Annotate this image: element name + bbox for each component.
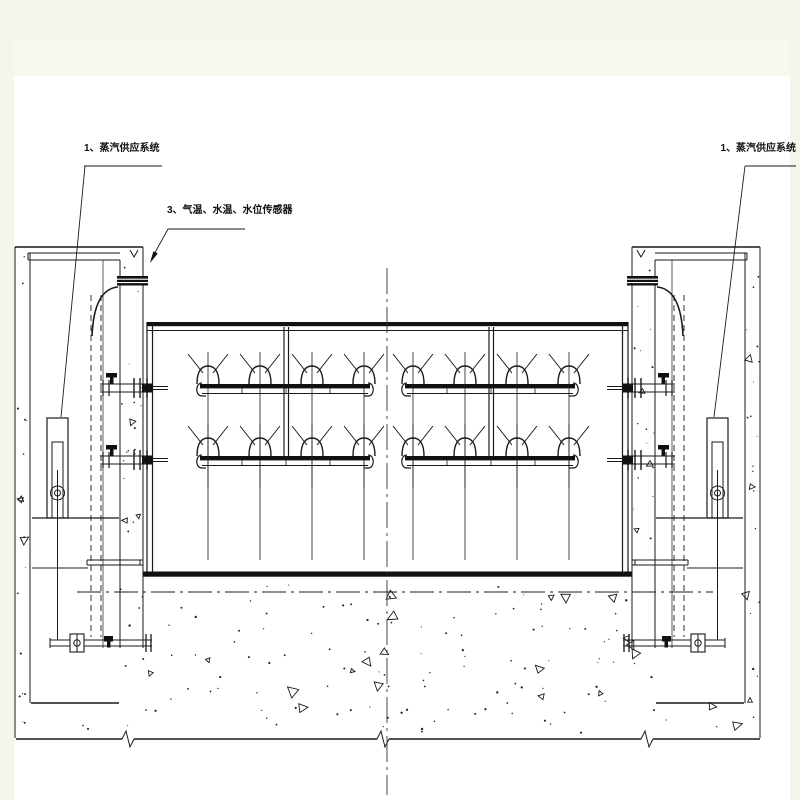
label-steam-supply-left-text: 1、蒸汽供应系统 [84,141,160,154]
label-sensors-text: 3、气温、水温、水位传感器 [167,203,294,216]
cad-sheet: 1、蒸汽供应系统 3、气温、水温、水位传感器 1、蒸汽供应系统 [0,0,800,800]
label-steam-supply-right-text: 1、蒸汽供应系统 [720,141,796,154]
engineering-drawing: 1、蒸汽供应系统 3、气温、水温、水位传感器 1、蒸汽供应系统 [0,0,800,800]
